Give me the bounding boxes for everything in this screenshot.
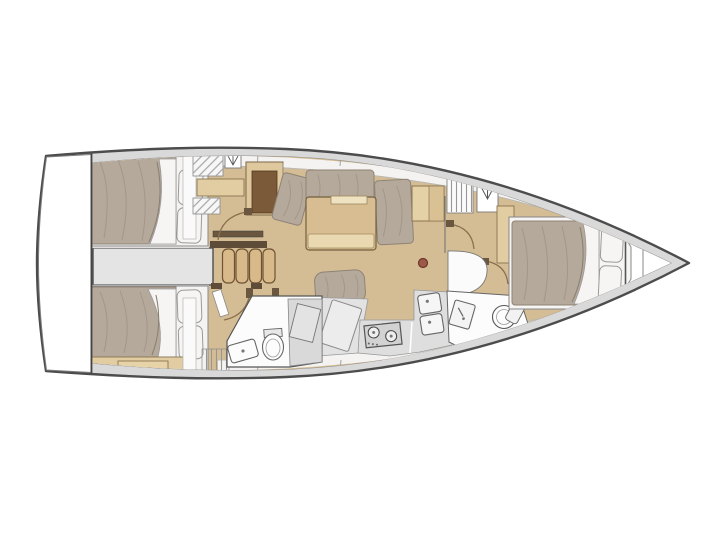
settee-back-right [374,179,413,245]
salon-locker [412,186,444,221]
stair-rail-top [210,241,267,248]
stair-tread [223,249,235,283]
table-leaf [308,234,374,248]
toilet [263,328,284,360]
stair-tread [263,249,275,283]
stove [364,322,402,348]
engine-corridor [93,248,213,285]
yacht-floorplan-canvas: Sailing yacht interior layout plan — top… [0,0,720,539]
salon-table [306,196,376,250]
aft-cabin-starboard [88,286,229,375]
mast-post [419,259,428,268]
stair-foot-left [211,283,222,289]
door-leaf [244,208,252,215]
table-slot [331,196,367,204]
transom-swim-platform [39,155,92,373]
side-locker-bottom [183,298,196,374]
sideboard-dark-panel [252,171,277,213]
stair-tread [250,249,262,283]
yacht-floorplan: Sailing yacht interior layout plan — top… [0,0,720,539]
door-leaf [446,220,454,227]
interior [88,148,694,392]
stair-tread [236,249,248,283]
wardrobe-shelf-wood [197,179,244,196]
shelf-hatch-lines-2 [193,198,220,214]
